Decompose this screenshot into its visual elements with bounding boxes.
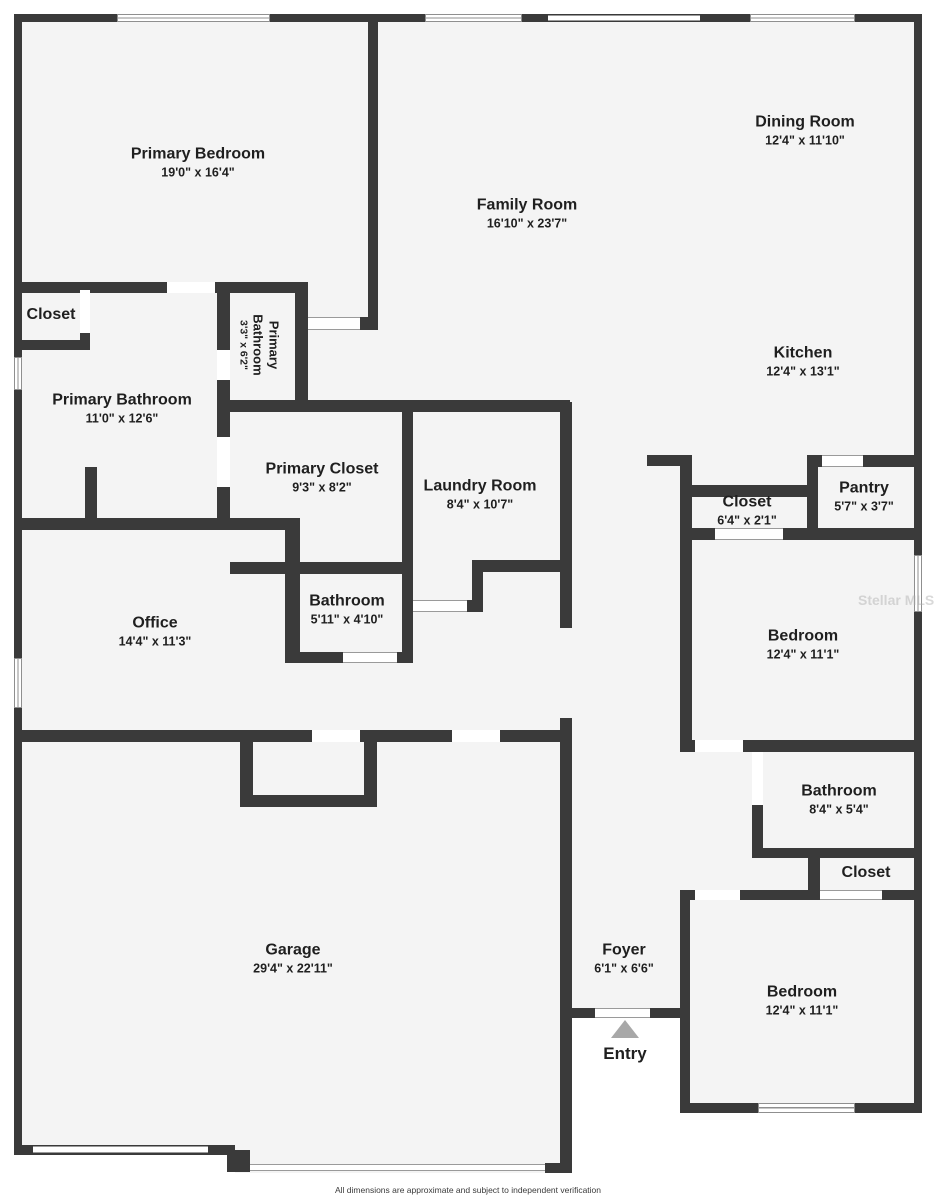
- room-label-dining-room: Dining Room12'4" x 11'10": [755, 113, 855, 150]
- wall: [14, 518, 300, 530]
- room-name: Family Room: [477, 196, 577, 216]
- wall: [472, 560, 572, 572]
- room-name: Primary Bathroom: [52, 391, 192, 411]
- room-name: Bedroom: [766, 983, 839, 1003]
- room-dims: 12'4" x 13'1": [766, 364, 839, 381]
- room-dims: 8'4" x 10'7": [424, 497, 537, 514]
- entry-arrow-icon: [611, 1020, 639, 1038]
- watermark: Stellar MLS: [858, 592, 934, 608]
- room-label-family-room: Family Room16'10" x 23'7": [477, 196, 577, 233]
- room-name: Garage: [253, 941, 333, 961]
- wall: [560, 718, 572, 1173]
- room-label-primary-bathroom: Primary Bathroom11'0" x 12'6": [52, 391, 192, 428]
- wall: [295, 282, 308, 412]
- door-opening: [820, 890, 882, 900]
- room-name: Laundry Room: [424, 477, 537, 497]
- room-name: Dining Room: [755, 113, 855, 133]
- room-dims: 12'4" x 11'10": [755, 133, 855, 150]
- room-name: Bathroom: [309, 592, 385, 612]
- door-opening: [413, 600, 467, 612]
- room-dims: 14'4" x 11'3": [119, 634, 192, 651]
- room-dims: 12'4" x 11'1": [766, 1003, 839, 1020]
- room-dims: 6'4" x 2'1": [717, 513, 777, 530]
- room-dims: 29'4" x 22'11": [253, 961, 333, 978]
- window: [750, 14, 855, 22]
- room-dims: 8'4" x 5'4": [801, 802, 877, 819]
- room-dims: 12'4" x 11'1": [767, 647, 840, 664]
- wall: [230, 562, 413, 574]
- room-label-laundry-room: Laundry Room8'4" x 10'7": [424, 477, 537, 514]
- door-opening: [695, 740, 743, 752]
- room-name: Office: [119, 614, 192, 634]
- room-dims: 5'11" x 4'10": [309, 612, 385, 629]
- room-label-bedroom-lower: Bedroom12'4" x 11'1": [766, 983, 839, 1020]
- room-name: Closet: [717, 493, 777, 513]
- window: [117, 14, 270, 22]
- wall: [752, 848, 922, 858]
- room-label-foyer: Foyer6'1" x 6'6": [594, 941, 654, 978]
- garage-door: [33, 1146, 208, 1153]
- door-opening: [548, 15, 700, 21]
- door-opening: [312, 730, 360, 742]
- window: [14, 658, 22, 708]
- room-label-pantry: Pantry5'7" x 3'7": [834, 479, 894, 516]
- room-dims: 16'10" x 23'7": [477, 216, 577, 233]
- window: [758, 1103, 855, 1113]
- wall: [14, 14, 22, 1155]
- door-opening: [595, 1008, 650, 1018]
- room-name: Primary Bathroom: [250, 309, 281, 381]
- wall: [85, 467, 97, 518]
- room-name: Closet: [27, 305, 76, 325]
- door-opening: [752, 752, 763, 805]
- wall: [285, 518, 300, 663]
- room-label-closet-bedroom: Closet: [842, 863, 891, 883]
- wall: [227, 1150, 250, 1172]
- door-opening: [695, 890, 740, 900]
- window: [14, 357, 22, 390]
- room-name: Primary Closet: [266, 460, 379, 480]
- entry-label: Entry: [603, 1044, 646, 1064]
- room-dims: 11'0" x 12'6": [52, 411, 192, 428]
- room-label-closet-hall: Closet6'4" x 2'1": [717, 493, 777, 530]
- wall: [240, 795, 377, 807]
- room-dims: 5'7" x 3'7": [834, 499, 894, 516]
- room-dims: 19'0" x 16'4": [131, 165, 265, 182]
- door-opening: [217, 350, 230, 380]
- door-opening: [452, 730, 500, 742]
- window: [425, 14, 522, 22]
- room-label-closet-top-left: Closet: [27, 305, 76, 325]
- wall: [217, 400, 570, 412]
- room-label-bedroom-upper: Bedroom12'4" x 11'1": [767, 627, 840, 664]
- room-name: Foyer: [594, 941, 654, 961]
- wall: [402, 402, 413, 663]
- room-name: Closet: [842, 863, 891, 883]
- floor-plan: Primary Bedroom19'0" x 16'4"Family Room1…: [0, 0, 936, 1200]
- room-name: Bedroom: [767, 627, 840, 647]
- door-opening: [308, 317, 360, 330]
- door-opening: [343, 652, 397, 663]
- room-label-primary-bedroom: Primary Bedroom19'0" x 16'4": [131, 145, 265, 182]
- room-name: Primary Bedroom: [131, 145, 265, 165]
- room-label-bathroom-middle: Bathroom5'11" x 4'10": [309, 592, 385, 629]
- wall: [14, 282, 298, 293]
- wall: [368, 14, 378, 317]
- room-dims: 3'3" x 6'2": [236, 309, 250, 381]
- room-name: Kitchen: [766, 344, 839, 364]
- door-opening: [80, 290, 90, 333]
- room-label-primary-closet: Primary Closet9'3" x 8'2": [266, 460, 379, 497]
- wall: [14, 340, 88, 350]
- door-opening: [217, 437, 230, 487]
- room-dims: 9'3" x 8'2": [266, 480, 379, 497]
- room-name: Pantry: [834, 479, 894, 499]
- door-opening: [715, 528, 783, 540]
- room-name: Bathroom: [801, 782, 877, 802]
- room-dims: 6'1" x 6'6": [594, 961, 654, 978]
- room-label-garage: Garage29'4" x 22'11": [253, 941, 333, 978]
- room-label-office: Office14'4" x 11'3": [119, 614, 192, 651]
- room-label-bathroom-right: Bathroom8'4" x 5'4": [801, 782, 877, 819]
- wall: [560, 402, 572, 628]
- garage-door: [250, 1164, 545, 1171]
- room-label-kitchen: Kitchen12'4" x 13'1": [766, 344, 839, 381]
- wall: [680, 890, 690, 1113]
- disclaimer-text: All dimensions are approximate and subje…: [0, 1185, 936, 1195]
- room-label-primary-bathroom-small: Primary Bathroom3'3" x 6'2": [236, 309, 281, 381]
- wall: [680, 540, 692, 750]
- door-opening: [822, 455, 863, 467]
- door-opening: [167, 282, 215, 293]
